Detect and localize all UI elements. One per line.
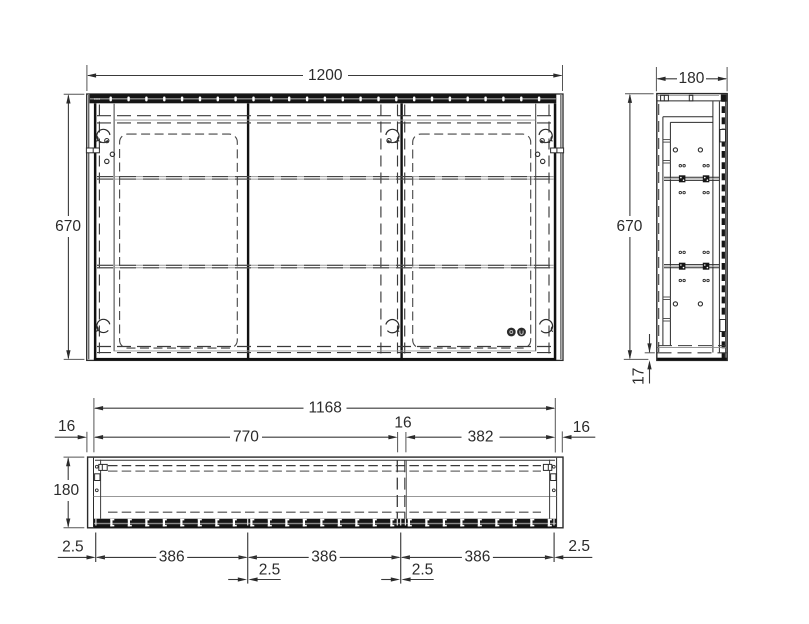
- svg-text:670: 670: [55, 218, 81, 235]
- svg-text:16: 16: [394, 414, 411, 431]
- svg-text:180: 180: [53, 482, 79, 499]
- svg-text:2.5: 2.5: [412, 562, 434, 579]
- svg-text:386: 386: [311, 549, 337, 566]
- svg-text:180: 180: [678, 70, 704, 87]
- svg-text:2.5: 2.5: [259, 562, 281, 579]
- svg-text:1168: 1168: [309, 400, 342, 417]
- svg-text:1200: 1200: [308, 67, 343, 84]
- svg-text:386: 386: [464, 549, 490, 566]
- svg-text:386: 386: [159, 549, 185, 566]
- svg-text:382: 382: [468, 429, 494, 446]
- svg-text:770: 770: [233, 429, 259, 446]
- svg-text:670: 670: [616, 218, 642, 235]
- svg-text:17: 17: [630, 368, 647, 385]
- svg-text:2.5: 2.5: [62, 539, 84, 556]
- svg-text:16: 16: [58, 418, 75, 435]
- svg-text:16: 16: [573, 419, 590, 436]
- svg-text:2.5: 2.5: [568, 538, 590, 555]
